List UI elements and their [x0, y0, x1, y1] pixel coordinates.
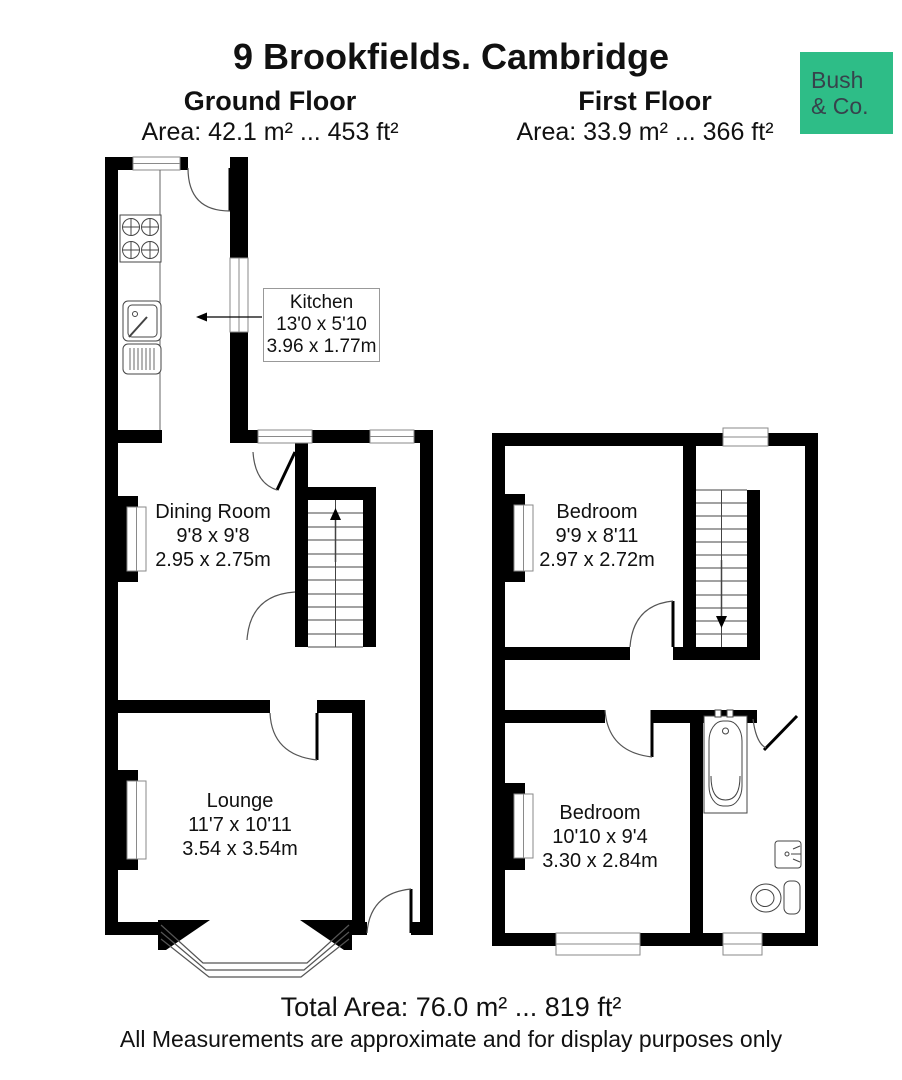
stairs-passage-door	[247, 592, 295, 640]
bath-icon	[704, 710, 747, 813]
agency-logo: Bush & Co.	[800, 52, 893, 134]
total-area: Total Area: 76.0 m² ... 819 ft²	[0, 992, 902, 1023]
kitchen-imperial: 13'0 x 5'10	[266, 314, 377, 336]
lounge-label: Lounge 11'7 x 10'11 3.54 x 3.54m	[140, 789, 340, 861]
bedroom1-door	[630, 601, 673, 647]
basin-icon	[775, 841, 801, 868]
kitchen-sink-icon	[123, 301, 161, 374]
kitchen-label: Kitchen 13'0 x 5'10 3.96 x 1.77m	[263, 288, 380, 362]
dining-door	[253, 452, 295, 490]
page-title: 9 Brookfields. Cambridge	[0, 36, 902, 78]
ground-floor-area: Area: 42.1 m² ... 453 ft²	[100, 118, 440, 147]
logo-line2: & Co.	[811, 93, 893, 119]
stairs-up-arrow-icon	[330, 508, 341, 520]
logo-line1: Bush	[811, 67, 893, 93]
kitchen-label-arrow-icon	[196, 313, 262, 322]
first-floor-heading: First Floor	[475, 86, 815, 117]
bathroom-bottom-window	[723, 933, 762, 955]
floorplan-page: 9 Brookfields. Cambridge Ground Floor Ar…	[0, 0, 902, 1080]
kitchen-metric: 3.96 x 1.77m	[266, 336, 377, 358]
front-door	[367, 889, 411, 933]
bedroom2-bottom-window	[556, 933, 640, 955]
stairs-down-arrow-icon	[716, 616, 727, 628]
measurements-disclaimer: All Measurements are approximate and for…	[0, 1026, 902, 1053]
bedroom2-door	[605, 710, 652, 757]
toilet-icon	[751, 881, 800, 914]
kitchen-side-window	[230, 258, 248, 332]
dining-room-label: Dining Room 9'8 x 9'8 2.95 x 2.75m	[113, 500, 313, 572]
first-floor-area: Area: 33.9 m² ... 366 ft²	[475, 118, 815, 147]
landing-top-window	[723, 428, 768, 446]
stairs-ground-floor	[308, 500, 363, 647]
lounge-door	[270, 713, 317, 760]
bedroom1-label: Bedroom 9'9 x 8'11 2.97 x 2.72m	[497, 500, 697, 572]
hob-icon	[120, 215, 161, 262]
bedroom2-label: Bedroom 10'10 x 9'4 3.30 x 2.84m	[500, 801, 700, 873]
kitchen-door	[188, 168, 230, 211]
stairs-first-floor	[696, 490, 747, 647]
ground-floor-heading: Ground Floor	[100, 86, 440, 117]
kitchen-top-window	[133, 157, 180, 170]
kitchen-name: Kitchen	[266, 292, 377, 314]
bathroom-door	[753, 716, 797, 750]
